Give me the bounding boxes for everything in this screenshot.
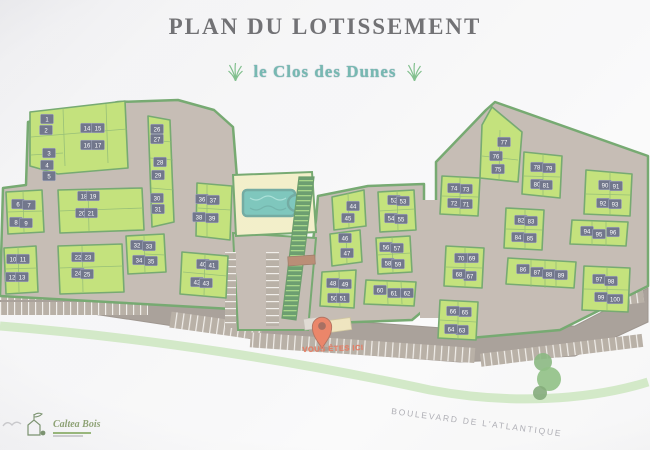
lot-marker: 43 bbox=[200, 278, 213, 288]
lot-marker: 81 bbox=[540, 180, 553, 190]
svg-text:25: 25 bbox=[84, 272, 91, 278]
lot-marker: 84 bbox=[512, 232, 525, 242]
lot-marker: 5 bbox=[43, 171, 56, 181]
svg-text:14: 14 bbox=[84, 126, 91, 132]
lot-marker: 96 bbox=[607, 227, 620, 237]
svg-text:56: 56 bbox=[383, 245, 390, 251]
lot-marker: 74 bbox=[448, 183, 461, 193]
lot-marker: 87 bbox=[531, 267, 544, 277]
svg-text:91: 91 bbox=[613, 184, 620, 190]
lot-marker: 25 bbox=[81, 269, 94, 279]
svg-text:61: 61 bbox=[391, 291, 398, 297]
lot-marker: 95 bbox=[593, 229, 606, 239]
svg-text:82: 82 bbox=[518, 218, 525, 224]
lot-marker: 15 bbox=[92, 123, 105, 133]
svg-text:37: 37 bbox=[210, 198, 217, 204]
svg-text:72: 72 bbox=[451, 201, 458, 207]
svg-text:55: 55 bbox=[398, 217, 405, 223]
svg-text:77: 77 bbox=[501, 140, 508, 146]
svg-text:38: 38 bbox=[196, 215, 203, 221]
lot-marker: 79 bbox=[543, 163, 556, 173]
lot-marker: 26 bbox=[151, 124, 164, 134]
svg-text:60: 60 bbox=[377, 288, 384, 294]
svg-text:66: 66 bbox=[450, 309, 457, 315]
lot-marker: 9 bbox=[20, 218, 33, 228]
builder-logo: Caltea Bois bbox=[24, 411, 101, 437]
lot-marker: 32 bbox=[131, 240, 144, 250]
logo-tagline bbox=[53, 435, 83, 437]
svg-text:51: 51 bbox=[340, 296, 347, 302]
lot-marker: 21 bbox=[85, 208, 98, 218]
subdivision-name: le Clos des Dunes bbox=[253, 62, 396, 82]
lot-marker: 35 bbox=[145, 256, 158, 266]
lot-marker: 7 bbox=[23, 200, 36, 210]
lot-marker: 17 bbox=[92, 140, 105, 150]
lot-marker: 53 bbox=[397, 196, 410, 206]
lot-marker: 34 bbox=[133, 255, 146, 265]
lot-marker: 30 bbox=[151, 193, 164, 203]
lot-marker: 62 bbox=[401, 288, 414, 298]
svg-text:62: 62 bbox=[404, 291, 411, 297]
svg-text:10: 10 bbox=[10, 257, 17, 263]
lot-marker: 92 bbox=[597, 198, 610, 208]
svg-text:11: 11 bbox=[20, 257, 27, 263]
lot-marker: 19 bbox=[87, 191, 100, 201]
svg-text:85: 85 bbox=[527, 236, 534, 242]
svg-text:63: 63 bbox=[459, 328, 466, 334]
lot-marker: 46 bbox=[339, 233, 352, 243]
lot-marker: 39 bbox=[206, 213, 219, 223]
lot-marker: 76 bbox=[490, 151, 503, 161]
svg-text:69: 69 bbox=[469, 256, 476, 262]
svg-text:26: 26 bbox=[154, 127, 161, 133]
lot-marker: 73 bbox=[460, 184, 473, 194]
svg-text:73: 73 bbox=[463, 187, 470, 193]
house-tree-icon bbox=[24, 411, 48, 437]
lot-marker: 45 bbox=[342, 213, 355, 223]
lot-marker: 38 bbox=[193, 212, 206, 222]
svg-text:70: 70 bbox=[458, 256, 465, 262]
svg-text:87: 87 bbox=[534, 270, 541, 276]
lot-marker: 93 bbox=[609, 199, 622, 209]
grass-icon bbox=[407, 63, 422, 81]
lot-marker: 65 bbox=[459, 307, 472, 317]
svg-text:93: 93 bbox=[612, 202, 619, 208]
svg-text:97: 97 bbox=[596, 277, 603, 283]
lot-marker: 2 bbox=[40, 125, 53, 135]
svg-text:65: 65 bbox=[462, 310, 469, 316]
page-title: PLAN DU LOTISSEMENT bbox=[0, 14, 650, 40]
svg-text:12: 12 bbox=[9, 275, 16, 281]
svg-text:29: 29 bbox=[155, 173, 162, 179]
svg-text:33: 33 bbox=[146, 244, 153, 250]
svg-text:34: 34 bbox=[136, 258, 143, 264]
lot-marker: 28 bbox=[154, 157, 167, 167]
lot-marker: 27 bbox=[151, 134, 164, 144]
svg-text:17: 17 bbox=[95, 143, 102, 149]
footbridge bbox=[288, 255, 316, 266]
svg-text:74: 74 bbox=[451, 186, 458, 192]
lot-marker: 71 bbox=[460, 199, 473, 209]
svg-text:71: 71 bbox=[463, 202, 470, 208]
svg-text:53: 53 bbox=[400, 199, 407, 205]
svg-text:49: 49 bbox=[342, 282, 349, 288]
lot-marker: 86 bbox=[517, 264, 530, 274]
lot-marker: 64 bbox=[445, 324, 458, 334]
svg-text:39: 39 bbox=[209, 216, 216, 222]
lot-marker: 47 bbox=[341, 248, 354, 258]
svg-text:23: 23 bbox=[85, 255, 92, 261]
lot-marker: 41 bbox=[206, 260, 219, 270]
lot-marker: 85 bbox=[524, 233, 537, 243]
lot-marker: 94 bbox=[581, 226, 594, 236]
lot-marker: 98 bbox=[605, 276, 618, 286]
svg-text:13: 13 bbox=[19, 275, 26, 281]
logo-name: Caltea Bois bbox=[53, 420, 101, 430]
svg-text:96: 96 bbox=[610, 230, 617, 236]
lot-marker: 68 bbox=[453, 269, 466, 279]
svg-text:79: 79 bbox=[546, 166, 553, 172]
svg-text:43: 43 bbox=[203, 281, 210, 287]
lot-marker: 72 bbox=[448, 198, 461, 208]
svg-text:16: 16 bbox=[84, 143, 91, 149]
svg-text:47: 47 bbox=[344, 251, 351, 257]
svg-text:22: 22 bbox=[75, 255, 82, 261]
svg-text:76: 76 bbox=[493, 154, 500, 160]
svg-text:64: 64 bbox=[448, 327, 455, 333]
svg-text:36: 36 bbox=[199, 197, 206, 203]
lot-marker: 33 bbox=[143, 241, 156, 251]
svg-text:98: 98 bbox=[608, 279, 615, 285]
lot-marker: 59 bbox=[392, 259, 405, 269]
svg-text:44: 44 bbox=[350, 204, 357, 210]
lot-marker: 23 bbox=[82, 252, 95, 262]
lot-marker: 57 bbox=[391, 243, 404, 253]
lot-marker: 48 bbox=[327, 278, 340, 288]
lot-marker: 88 bbox=[543, 269, 556, 279]
bird-sketch-icon bbox=[2, 418, 22, 430]
svg-text:32: 32 bbox=[134, 243, 141, 249]
lot-marker: 11 bbox=[17, 254, 30, 264]
lot-marker: 66 bbox=[447, 306, 460, 316]
svg-text:99: 99 bbox=[598, 295, 605, 301]
svg-text:35: 35 bbox=[148, 259, 155, 265]
lot-marker: 3 bbox=[43, 148, 56, 158]
svg-text:58: 58 bbox=[385, 261, 392, 267]
lot-marker: 91 bbox=[610, 181, 623, 191]
lot-marker: 13 bbox=[16, 272, 29, 282]
svg-text:28: 28 bbox=[157, 160, 164, 166]
svg-text:78: 78 bbox=[534, 165, 541, 171]
svg-text:45: 45 bbox=[345, 216, 352, 222]
svg-text:54: 54 bbox=[388, 216, 395, 222]
svg-text:88: 88 bbox=[546, 272, 553, 278]
svg-text:19: 19 bbox=[90, 194, 97, 200]
lot-marker: 83 bbox=[525, 216, 538, 226]
svg-text:92: 92 bbox=[600, 201, 607, 207]
svg-text:83: 83 bbox=[528, 219, 535, 225]
lot-marker: 75 bbox=[492, 164, 505, 174]
svg-text:48: 48 bbox=[330, 281, 337, 287]
svg-text:84: 84 bbox=[515, 235, 522, 241]
lot-marker: 4 bbox=[41, 160, 54, 170]
tree bbox=[533, 353, 561, 400]
subtitle-row: le Clos des Dunes bbox=[0, 62, 650, 82]
svg-text:100: 100 bbox=[610, 297, 621, 303]
svg-text:75: 75 bbox=[495, 167, 502, 173]
lot-marker: 61 bbox=[388, 288, 401, 298]
lot-marker: 77 bbox=[498, 137, 511, 147]
svg-text:67: 67 bbox=[467, 274, 474, 280]
svg-text:41: 41 bbox=[209, 263, 216, 269]
lot-marker: 78 bbox=[531, 162, 544, 172]
lot-marker: 60 bbox=[374, 285, 387, 295]
lot-marker: 89 bbox=[555, 270, 568, 280]
svg-text:27: 27 bbox=[154, 137, 161, 143]
svg-text:81: 81 bbox=[543, 183, 550, 189]
svg-text:21: 21 bbox=[88, 211, 95, 217]
lot-marker: 97 bbox=[593, 274, 606, 284]
svg-text:86: 86 bbox=[520, 267, 527, 273]
svg-text:94: 94 bbox=[584, 229, 591, 235]
lot-marker: 31 bbox=[152, 204, 165, 214]
lot-marker: 55 bbox=[395, 214, 408, 224]
svg-text:57: 57 bbox=[394, 246, 401, 252]
lot-marker: 29 bbox=[152, 170, 165, 180]
svg-text:90: 90 bbox=[602, 183, 609, 189]
svg-text:30: 30 bbox=[154, 196, 161, 202]
logo-rule bbox=[53, 432, 91, 434]
lot-marker: 49 bbox=[339, 279, 352, 289]
svg-text:31: 31 bbox=[155, 207, 162, 213]
lot-marker: 70 bbox=[455, 253, 468, 263]
svg-text:59: 59 bbox=[395, 262, 402, 268]
lot-marker: 1 bbox=[41, 114, 54, 124]
grass-icon bbox=[228, 63, 243, 81]
svg-text:15: 15 bbox=[95, 126, 102, 132]
svg-text:95: 95 bbox=[596, 232, 603, 238]
lot-marker: 51 bbox=[337, 293, 350, 303]
svg-text:46: 46 bbox=[342, 236, 349, 242]
lot-marker: 44 bbox=[347, 201, 360, 211]
lot-marker: 99 bbox=[595, 292, 608, 302]
site-plan-poster: PLAN DU LOTISSEMENT le Clos des Dunes bbox=[0, 0, 650, 450]
svg-text:89: 89 bbox=[558, 273, 565, 279]
lot-marker: 100 bbox=[607, 294, 623, 304]
svg-text:68: 68 bbox=[456, 272, 463, 278]
lot-marker: 37 bbox=[207, 195, 220, 205]
